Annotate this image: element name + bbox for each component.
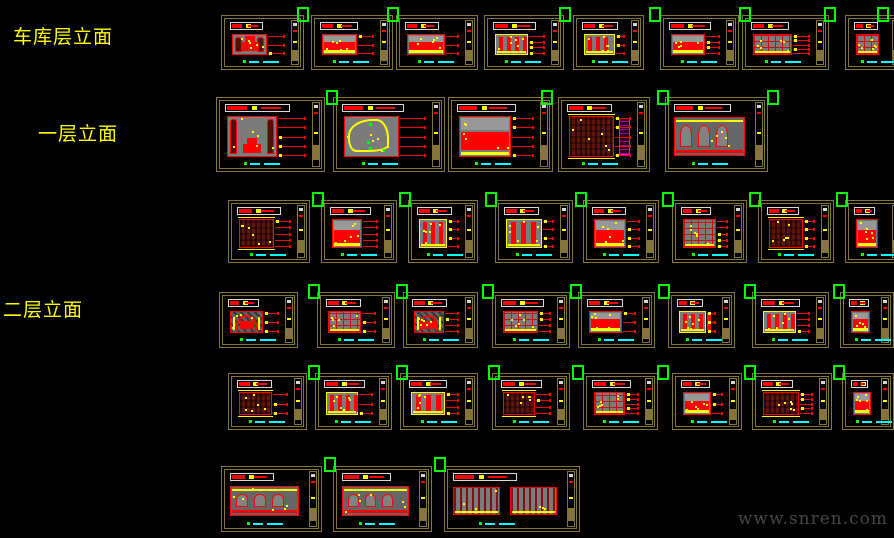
drawing-panel[interactable]	[842, 373, 894, 430]
cad-linework	[269, 241, 271, 243]
annotation-text-mark	[609, 421, 619, 423]
cad-linework	[505, 329, 536, 331]
cad-linework	[568, 158, 615, 159]
cad-linework	[252, 106, 257, 110]
cad-linework	[539, 506, 541, 508]
cad-linework	[559, 300, 563, 303]
cad-linework	[569, 474, 573, 477]
scale-mark	[505, 60, 508, 63]
cad-linework	[851, 301, 857, 305]
cad-linework	[511, 222, 516, 245]
cad-linework	[813, 220, 815, 223]
scale-mark	[772, 338, 775, 341]
cad-linework	[698, 106, 703, 110]
cad-linework	[726, 245, 728, 248]
cad-linework	[376, 220, 378, 223]
cad-linework	[866, 409, 868, 411]
cad-linework	[238, 217, 275, 218]
cad-linework	[424, 126, 426, 129]
dimension-line	[400, 137, 426, 138]
cad-linework	[421, 497, 425, 499]
cad-linework	[801, 407, 804, 410]
annotation-text-mark	[499, 523, 515, 525]
cad-linework	[553, 41, 557, 43]
cad-linework	[328, 411, 356, 413]
cad-linework	[507, 147, 509, 149]
cad-linework	[883, 381, 887, 384]
cad-linework	[503, 301, 516, 305]
drawing-panel[interactable]	[752, 292, 829, 348]
cad-linework	[376, 239, 378, 242]
cad-linework	[233, 146, 235, 148]
cad-linework	[542, 132, 546, 134]
cad-linework	[823, 215, 827, 217]
cad-linework	[455, 511, 498, 513]
cad-linework	[238, 249, 275, 250]
cad-linework	[287, 318, 291, 320]
layout-viewport-marker	[749, 192, 761, 207]
cad-linework	[439, 317, 441, 330]
cad-linework	[639, 105, 643, 108]
cad-linework	[602, 226, 604, 228]
drawing-panel[interactable]	[758, 200, 834, 263]
annotation-text-mark	[427, 421, 437, 423]
cad-linework	[332, 319, 334, 321]
annotation-text-mark	[778, 339, 788, 341]
cad-linework	[760, 40, 762, 42]
cad-linework	[344, 510, 407, 513]
drawing-panel[interactable]	[583, 200, 659, 263]
cad-linework	[457, 220, 459, 223]
drawing-panel[interactable]	[400, 373, 478, 430]
cad-linework	[424, 396, 426, 398]
scale-mark	[359, 522, 362, 525]
cad-linework	[638, 245, 640, 248]
annotation-text-mark	[792, 339, 808, 341]
annotation-text-mark	[602, 163, 618, 165]
annotation-text-mark	[447, 254, 463, 256]
scale-mark	[778, 253, 781, 256]
drawing-panel[interactable]	[321, 200, 397, 263]
cad-linework	[616, 126, 619, 129]
cad-linework	[376, 233, 378, 236]
cad-linework	[549, 393, 551, 396]
cad-linework	[314, 105, 318, 108]
cad-linework	[292, 50, 298, 61]
annotation-text-mark	[536, 254, 552, 256]
cad-linework	[638, 228, 640, 231]
cad-linework	[299, 215, 303, 217]
layout-viewport-marker	[297, 7, 309, 22]
cad-linework	[457, 245, 459, 248]
scale-mark	[479, 522, 482, 525]
scale-mark	[603, 253, 606, 256]
cad-linework	[277, 330, 279, 333]
cad-linework	[858, 51, 877, 53]
annotation-text-mark	[525, 61, 541, 63]
annotation-text-mark	[618, 339, 634, 341]
floor-label-garage: 车库层立面	[13, 27, 113, 48]
drawing-panel[interactable]	[396, 15, 478, 70]
annotation-text-mark	[711, 421, 727, 423]
cad-linework	[544, 245, 547, 248]
layout-viewport-marker	[541, 90, 553, 105]
cad-linework	[728, 145, 730, 147]
cad-linework	[883, 318, 887, 320]
cad-linework	[552, 237, 554, 240]
cad-linework	[289, 226, 291, 229]
scale-mark	[773, 420, 776, 423]
layout-viewport-marker	[744, 365, 756, 380]
cad-linework	[284, 508, 286, 510]
cad-linework	[736, 208, 740, 211]
scale-mark	[513, 338, 516, 341]
cad-linework	[236, 315, 238, 317]
cad-linework	[242, 498, 244, 500]
scale-mark	[598, 338, 601, 341]
cad-linework	[376, 226, 378, 229]
drawing-panel[interactable]	[315, 373, 392, 430]
drawing-panel[interactable]	[311, 15, 393, 70]
cad-linework	[818, 41, 822, 43]
drawing-panel[interactable]	[845, 200, 894, 263]
drawing-panel[interactable]	[492, 292, 570, 348]
cad-linework	[232, 475, 245, 479]
cad-linework	[648, 208, 652, 211]
cad-linework	[883, 388, 887, 390]
drawing-panel[interactable]	[228, 373, 307, 430]
cad-linework	[778, 404, 780, 406]
cad-linework	[382, 494, 393, 507]
cad-linework	[608, 327, 610, 329]
drawing-panel[interactable]	[403, 292, 478, 348]
cad-linework	[860, 302, 866, 304]
cad-linework	[721, 131, 723, 133]
cad-linework	[417, 407, 419, 409]
cad-canvas[interactable]: 车库层立面 一层立面 二层立面 www.snren.com	[0, 0, 894, 538]
cad-linework	[382, 30, 386, 32]
cad-linework	[699, 314, 703, 330]
cad-linework	[724, 300, 728, 303]
hatched-elevation	[239, 392, 272, 415]
hatched-elevation	[239, 219, 274, 248]
annotation-text-mark	[255, 421, 265, 423]
cad-linework	[447, 393, 450, 396]
cad-linework	[381, 400, 385, 402]
scale-mark	[513, 420, 516, 423]
cad-linework	[439, 411, 441, 413]
cad-linework	[594, 209, 604, 213]
cad-linework	[421, 481, 425, 483]
cad-linework	[507, 394, 509, 396]
cad-linework	[561, 240, 567, 253]
cad-linework	[552, 228, 554, 231]
cad-linework	[371, 403, 373, 406]
cad-linework	[515, 325, 517, 327]
annotation-text-mark	[365, 523, 375, 525]
cad-linework	[381, 388, 385, 390]
floor-label-second-floor: 二层立面	[3, 300, 83, 321]
drawing-panel[interactable]	[492, 373, 570, 430]
annotation-text-mark	[495, 163, 511, 165]
drawing-panel[interactable]	[845, 15, 894, 70]
cad-linework	[304, 136, 306, 139]
cad-linework	[794, 39, 797, 42]
layout-viewport-marker	[649, 7, 661, 22]
cad-linework	[432, 41, 434, 43]
cad-linework	[871, 232, 873, 234]
annotation-text-mark	[875, 339, 891, 341]
cad-linework	[859, 400, 861, 402]
cad-linework	[872, 237, 874, 239]
cad-linework	[549, 412, 551, 415]
cad-linework	[482, 106, 487, 110]
drawing-panel[interactable]	[228, 200, 310, 263]
cad-linework	[589, 301, 600, 305]
annotation-text-mark	[438, 61, 454, 63]
cad-linework	[426, 395, 431, 412]
cad-linework	[549, 399, 551, 402]
cad-linework	[497, 147, 499, 149]
cad-linework	[238, 416, 273, 417]
cad-linework	[258, 317, 260, 330]
cad-linework	[304, 126, 306, 129]
cad-linework	[252, 131, 254, 133]
cad-linework	[596, 327, 598, 329]
drawing-panel[interactable]	[752, 373, 832, 430]
cad-linework	[286, 403, 288, 406]
cad-linework	[568, 114, 615, 115]
cad-linework	[681, 329, 704, 331]
cad-linework	[801, 393, 804, 396]
cad-linework	[648, 215, 652, 217]
cad-linework	[559, 318, 563, 320]
cad-linework	[617, 44, 620, 47]
cad-linework	[449, 237, 452, 240]
drawing-panel[interactable]	[672, 373, 742, 430]
cad-linework	[866, 228, 868, 230]
cad-linework	[465, 138, 467, 140]
cad-linework	[865, 231, 867, 233]
cad-linework	[808, 324, 810, 327]
scale-mark	[244, 162, 247, 165]
scale-mark	[582, 162, 585, 165]
cad-linework	[376, 107, 395, 109]
cad-linework	[346, 329, 348, 331]
drawing-panel[interactable]	[558, 97, 650, 172]
cad-linework	[382, 23, 386, 26]
cad-linework	[760, 47, 762, 49]
annotation-text-mark	[533, 421, 549, 423]
annotation-text-mark	[344, 339, 354, 341]
layout-viewport-marker	[833, 284, 845, 299]
cad-linework	[387, 146, 389, 148]
annotation-text-mark	[519, 421, 529, 423]
cad-linework	[372, 44, 374, 47]
cad-linework	[513, 117, 516, 120]
cad-linework	[562, 229, 566, 231]
cad-linework	[628, 237, 631, 240]
drawing-panel[interactable]	[672, 200, 747, 263]
cad-linework	[257, 135, 259, 137]
drawing-panel[interactable]	[665, 97, 768, 172]
scale-mark	[421, 420, 424, 423]
cad-linework	[603, 36, 605, 38]
cad-linework	[411, 382, 422, 386]
cad-linework	[628, 228, 631, 231]
cad-linework	[532, 117, 534, 120]
drawing-panel[interactable]	[219, 292, 298, 348]
cad-linework	[265, 330, 268, 333]
cad-linework	[821, 400, 825, 402]
cad-linework	[685, 394, 709, 401]
cad-linework	[503, 382, 515, 386]
cad-linework	[374, 312, 376, 315]
cad-linework	[676, 106, 693, 110]
cad-linework	[336, 396, 338, 398]
scale-mark	[427, 253, 430, 256]
drawing-panel[interactable]	[333, 97, 445, 172]
drawing-panel[interactable]	[408, 200, 478, 263]
cad-linework	[808, 48, 810, 51]
cad-linework	[798, 330, 801, 333]
cad-linework	[513, 154, 516, 157]
cad-linework	[363, 330, 366, 333]
cad-linework	[691, 401, 693, 403]
cad-linework	[637, 407, 639, 410]
cad-linework	[457, 318, 459, 321]
cad-linework	[457, 237, 459, 240]
cad-linework	[811, 398, 813, 401]
cad-linework	[330, 395, 334, 412]
cad-linework	[544, 508, 546, 510]
cad-linework	[253, 394, 255, 396]
cad-linework	[853, 382, 858, 386]
cad-linework	[782, 322, 784, 324]
scale-mark	[243, 60, 246, 63]
cad-linework	[588, 138, 590, 140]
layout-viewport-marker	[308, 284, 320, 299]
cad-linework	[251, 410, 253, 412]
cad-linework	[678, 46, 680, 48]
cad-linework	[447, 412, 450, 415]
cad-linework	[382, 41, 386, 43]
cad-linework	[811, 407, 813, 410]
cad-linework	[823, 229, 827, 231]
cad-linework	[274, 403, 277, 406]
drawing-panel[interactable]	[840, 292, 894, 348]
cad-linework	[736, 215, 740, 217]
cad-linework	[371, 412, 373, 415]
annotation-text-mark	[881, 254, 894, 256]
drawing-panel[interactable]	[317, 292, 395, 348]
cad-linework	[227, 106, 247, 110]
cad-linework	[643, 328, 649, 339]
cad-linework	[348, 397, 350, 399]
layout-viewport-marker	[396, 284, 408, 299]
cad-linework	[377, 138, 379, 140]
cad-linework	[530, 41, 533, 44]
drawing-panel[interactable]	[221, 466, 322, 532]
cad-linework	[330, 329, 359, 331]
cad-linework	[286, 328, 292, 339]
dimension-line	[400, 118, 426, 119]
cad-linework	[345, 511, 347, 513]
cad-linework	[696, 235, 698, 237]
dimension-line	[278, 118, 306, 119]
annotation-text-mark	[698, 254, 708, 256]
drawing-panel[interactable]	[578, 292, 655, 348]
cad-linework	[817, 328, 823, 339]
cad-linework	[856, 399, 858, 401]
cad-linework	[821, 388, 825, 390]
cad-linework	[293, 30, 297, 32]
scale-mark	[338, 338, 341, 341]
cad-linework	[467, 318, 471, 320]
cad-linework	[541, 145, 547, 160]
cad-linework	[644, 318, 648, 320]
cad-linework	[607, 302, 618, 304]
drawing-panel[interactable]	[660, 15, 739, 70]
drawing-panel[interactable]	[333, 466, 432, 532]
cad-linework	[817, 50, 823, 61]
cad-linework	[629, 154, 631, 157]
drawing-panel[interactable]	[495, 200, 573, 263]
cad-linework	[521, 222, 526, 245]
drawing-panel[interactable]	[444, 466, 580, 532]
cad-linework	[542, 105, 546, 108]
cad-linework	[274, 412, 277, 415]
cad-linework	[374, 330, 376, 333]
cad-linework	[552, 50, 558, 61]
cad-linework	[434, 132, 438, 134]
cad-linework	[436, 395, 441, 412]
drawing-panel[interactable]	[484, 15, 564, 70]
cad-linework	[609, 236, 611, 238]
cad-linework	[883, 307, 887, 309]
cad-linework	[241, 118, 243, 120]
scale-mark	[861, 253, 864, 256]
scale-mark	[765, 60, 768, 63]
cad-linework	[862, 323, 864, 325]
scale-mark	[686, 338, 689, 341]
cad-linework	[718, 52, 720, 55]
cad-linework	[883, 400, 887, 402]
annotation-text-mark	[588, 163, 598, 165]
drawing-panel[interactable]	[216, 97, 325, 172]
cad-linework	[638, 145, 644, 160]
cad-linework	[808, 330, 810, 333]
cad-linework	[718, 41, 720, 44]
cad-linework	[676, 150, 743, 153]
layout-viewport-marker	[559, 7, 571, 22]
drawing-panel[interactable]	[583, 373, 658, 430]
drawing-panel[interactable]	[221, 15, 304, 70]
drawing-panel[interactable]	[573, 15, 644, 70]
cad-linework	[537, 399, 540, 402]
drawing-panel[interactable]	[448, 97, 553, 172]
cad-linework	[532, 326, 534, 328]
cad-linework	[240, 321, 254, 329]
cad-linework	[296, 381, 300, 384]
drawing-panel[interactable]	[668, 292, 735, 348]
cad-linework	[245, 409, 247, 411]
cad-linework	[623, 52, 625, 55]
cad-linework	[530, 46, 533, 49]
cad-linework	[502, 416, 536, 417]
drawing-panel[interactable]	[742, 15, 829, 70]
cad-linework	[467, 23, 471, 26]
